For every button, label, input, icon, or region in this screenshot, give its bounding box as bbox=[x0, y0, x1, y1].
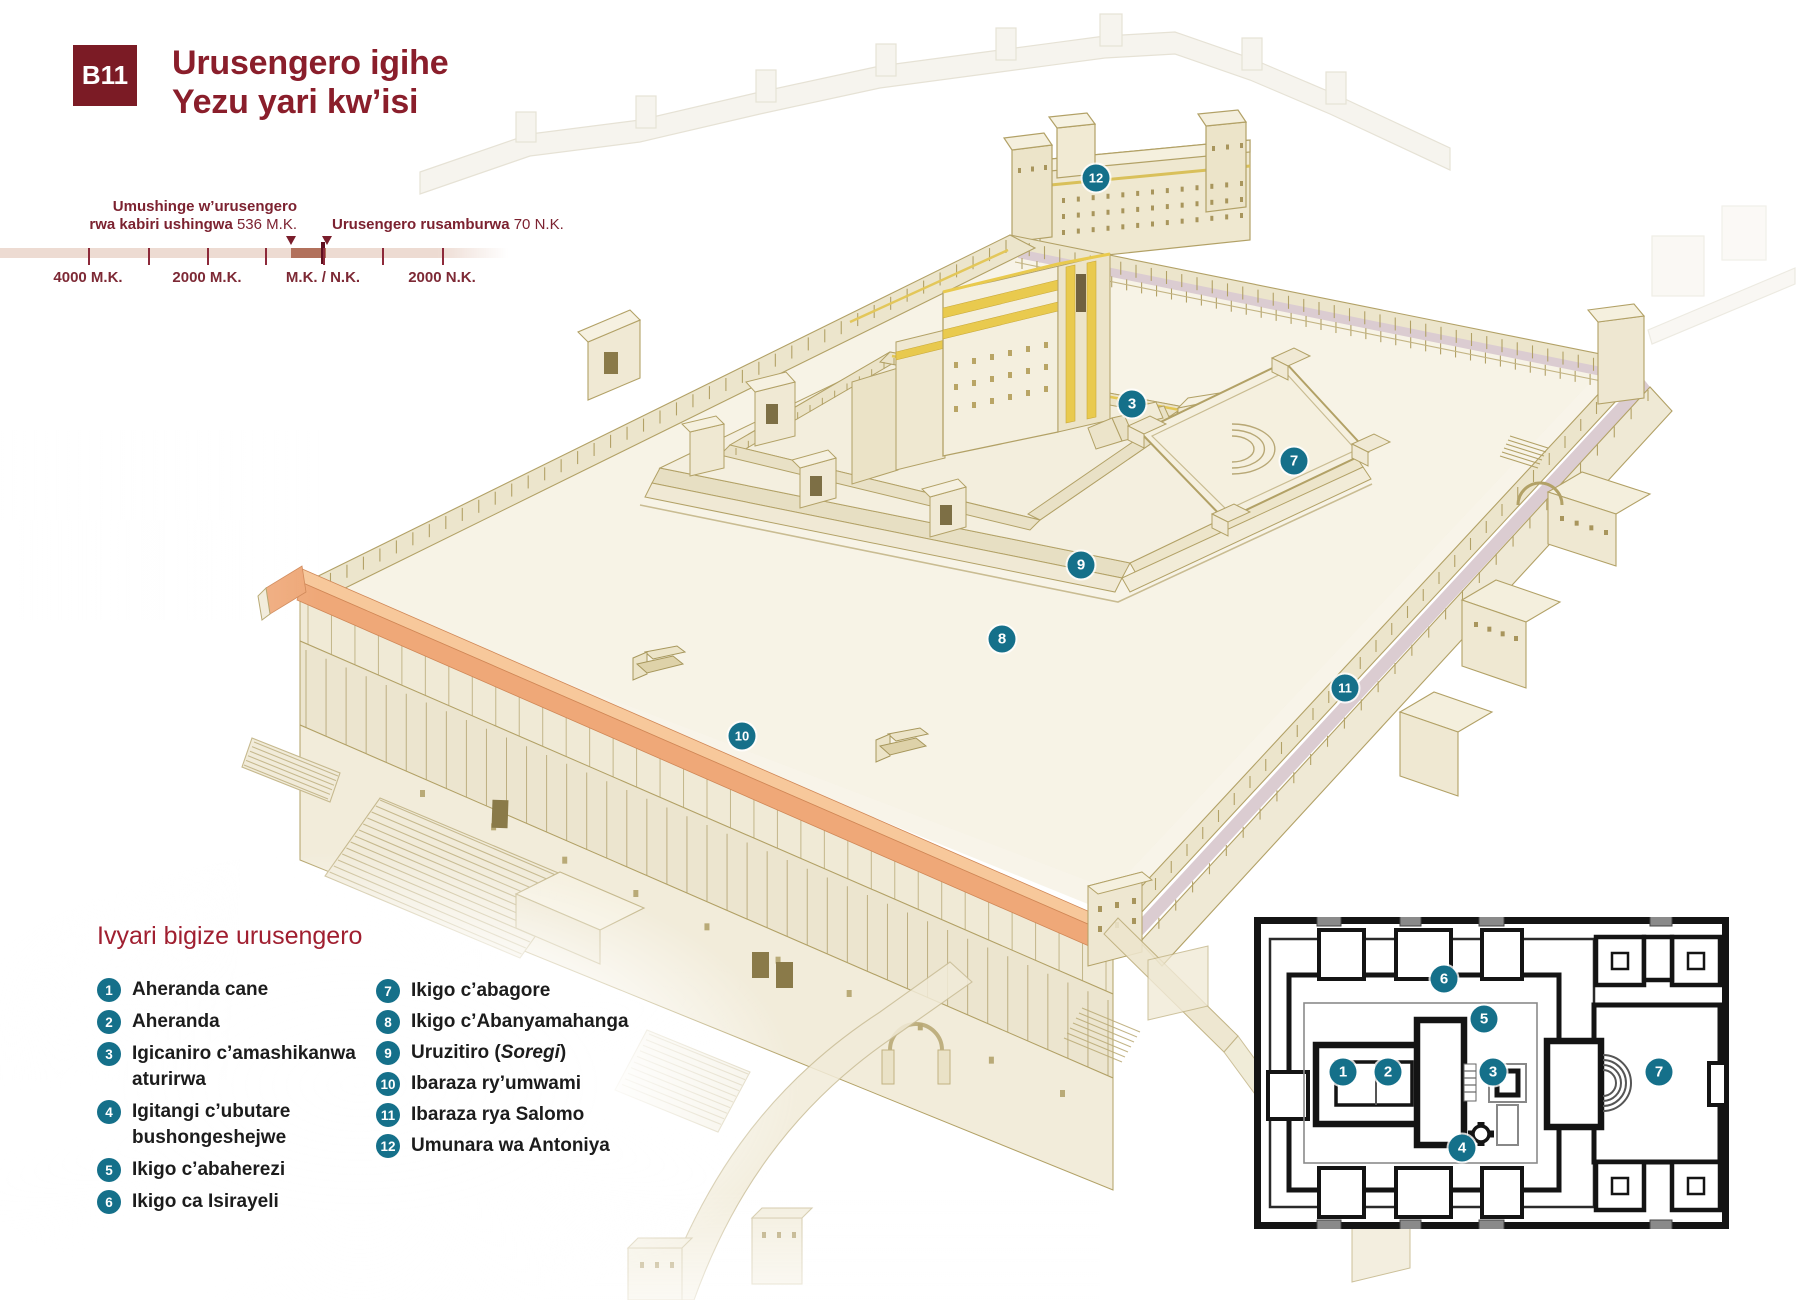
legend-item-number: 7 bbox=[376, 979, 400, 1003]
legend-item-number: 2 bbox=[97, 1010, 121, 1034]
legend-item-number: 5 bbox=[97, 1158, 121, 1182]
timeline-marker-triangle-1 bbox=[286, 236, 296, 245]
location-marker-12: 12 bbox=[1083, 165, 1110, 192]
title-line-2: Yezu yari kw’isi bbox=[172, 83, 448, 122]
legend-item-label: Ibaraza ry’umwami bbox=[411, 1071, 581, 1097]
legend-item: 3Igicaniro c’amashikanwa aturirwa bbox=[97, 1041, 377, 1093]
location-marker-7: 7 bbox=[1281, 448, 1308, 475]
antonia-fortress bbox=[1004, 110, 1250, 262]
legend-column-right: 7Ikigo c’abagore8Ikigo c’Abanyamahanga9U… bbox=[376, 978, 696, 1164]
location-marker-1: 1 bbox=[1330, 1059, 1357, 1086]
location-marker-5: 5 bbox=[1471, 1006, 1498, 1033]
legend-item-label: Aheranda cane bbox=[132, 977, 268, 1003]
timeline-event-1: Umushinge w’urusengero rwa kabiri ushing… bbox=[7, 198, 297, 234]
timeline-tick-label: 2000 M.K. bbox=[147, 269, 267, 286]
legend-item-label: Uruzitiro (Soregi) bbox=[411, 1040, 566, 1066]
legend-item: 8Ikigo c’Abanyamahanga bbox=[376, 1009, 696, 1035]
timeline-tick-label: 4000 M.K. bbox=[28, 269, 148, 286]
legend-item-number: 3 bbox=[97, 1042, 121, 1066]
legend-item-label: Ibaraza rya Salomo bbox=[411, 1102, 584, 1128]
timeline-tick bbox=[88, 248, 90, 265]
timeline-bar bbox=[0, 248, 508, 258]
legend-item: 9Uruzitiro (Soregi) bbox=[376, 1040, 696, 1066]
legend-item-label: Ikigo c’Abanyamahanga bbox=[411, 1009, 629, 1035]
legend-item-number: 6 bbox=[97, 1190, 121, 1214]
plan-nicanor-gate bbox=[1547, 1041, 1601, 1127]
legend-item: 2Aheranda bbox=[97, 1009, 377, 1035]
legend-item: 6Ikigo ca Isirayeli bbox=[97, 1189, 377, 1215]
timeline-tick bbox=[442, 248, 444, 265]
legend-item-label: Ikigo c’abagore bbox=[411, 978, 550, 1004]
legend-item: 4Igitangi c’ubutare bushongeshejwe bbox=[97, 1099, 377, 1151]
timeline-tick bbox=[323, 248, 325, 265]
location-marker-9: 9 bbox=[1068, 552, 1095, 579]
timeline-tick-label: 2000 N.K. bbox=[382, 269, 502, 286]
legend-item-number: 12 bbox=[376, 1134, 400, 1158]
location-marker-8: 8 bbox=[989, 626, 1016, 653]
legend-item: 12Umunara wa Antoniya bbox=[376, 1133, 696, 1159]
location-marker-11: 11 bbox=[1332, 675, 1359, 702]
timeline-tick bbox=[265, 248, 267, 265]
location-marker-2: 2 bbox=[1375, 1059, 1402, 1086]
location-marker-7: 7 bbox=[1646, 1059, 1673, 1086]
legend-item-number: 8 bbox=[376, 1010, 400, 1034]
location-marker-4: 4 bbox=[1449, 1135, 1476, 1162]
location-marker-6: 6 bbox=[1431, 966, 1458, 993]
timeline-event-2: Urusengero rusamburwa 70 N.K. bbox=[332, 216, 564, 234]
legend-item-number: 9 bbox=[376, 1041, 400, 1065]
legend-item-label: Umunara wa Antoniya bbox=[411, 1133, 610, 1159]
location-marker-3: 3 bbox=[1480, 1059, 1507, 1086]
legend-heading: Ivyari bigize urusengero bbox=[97, 922, 362, 951]
floorplan-inset: 1234567 bbox=[1254, 917, 1729, 1229]
title-line-1: Urusengero igihe bbox=[172, 44, 448, 83]
legend-column-left: 1Aheranda cane2Aheranda3Igicaniro c’amas… bbox=[97, 977, 377, 1221]
timeline-tick bbox=[207, 248, 209, 265]
timeline-tick bbox=[382, 248, 384, 265]
location-marker-3: 3 bbox=[1119, 391, 1146, 418]
legend-item-label: Ikigo ca Isirayeli bbox=[132, 1189, 279, 1215]
legend-item: 7Ikigo c’abagore bbox=[376, 978, 696, 1004]
legend-item-label: Igicaniro c’amashikanwa aturirwa bbox=[132, 1041, 372, 1093]
legend-item-number: 4 bbox=[97, 1100, 121, 1124]
legend-item: 1Aheranda cane bbox=[97, 977, 377, 1003]
legend-item-label: Igitangi c’ubutare bushongeshejwe bbox=[132, 1099, 372, 1151]
legend-item-number: 1 bbox=[97, 978, 121, 1002]
timeline: Umushinge w’urusengero rwa kabiri ushing… bbox=[0, 193, 600, 298]
legend-item-label: Ikigo c’abaherezi bbox=[132, 1157, 285, 1183]
legend-item-label: Aheranda bbox=[132, 1009, 220, 1035]
legend-item-number: 11 bbox=[376, 1103, 400, 1127]
timeline-tick-label: M.K. / N.K. bbox=[263, 269, 383, 286]
section-badge: B11 bbox=[73, 45, 137, 106]
legend-item: 10Ibaraza ry’umwami bbox=[376, 1071, 696, 1097]
timeline-tick bbox=[148, 248, 150, 265]
legend-item: 11Ibaraza rya Salomo bbox=[376, 1102, 696, 1128]
legend-item: 5Ikigo c’abaherezi bbox=[97, 1157, 377, 1183]
page-title: Urusengero igihe Yezu yari kw’isi bbox=[172, 44, 448, 122]
legend-item-number: 10 bbox=[376, 1072, 400, 1096]
location-marker-10: 10 bbox=[729, 723, 756, 750]
